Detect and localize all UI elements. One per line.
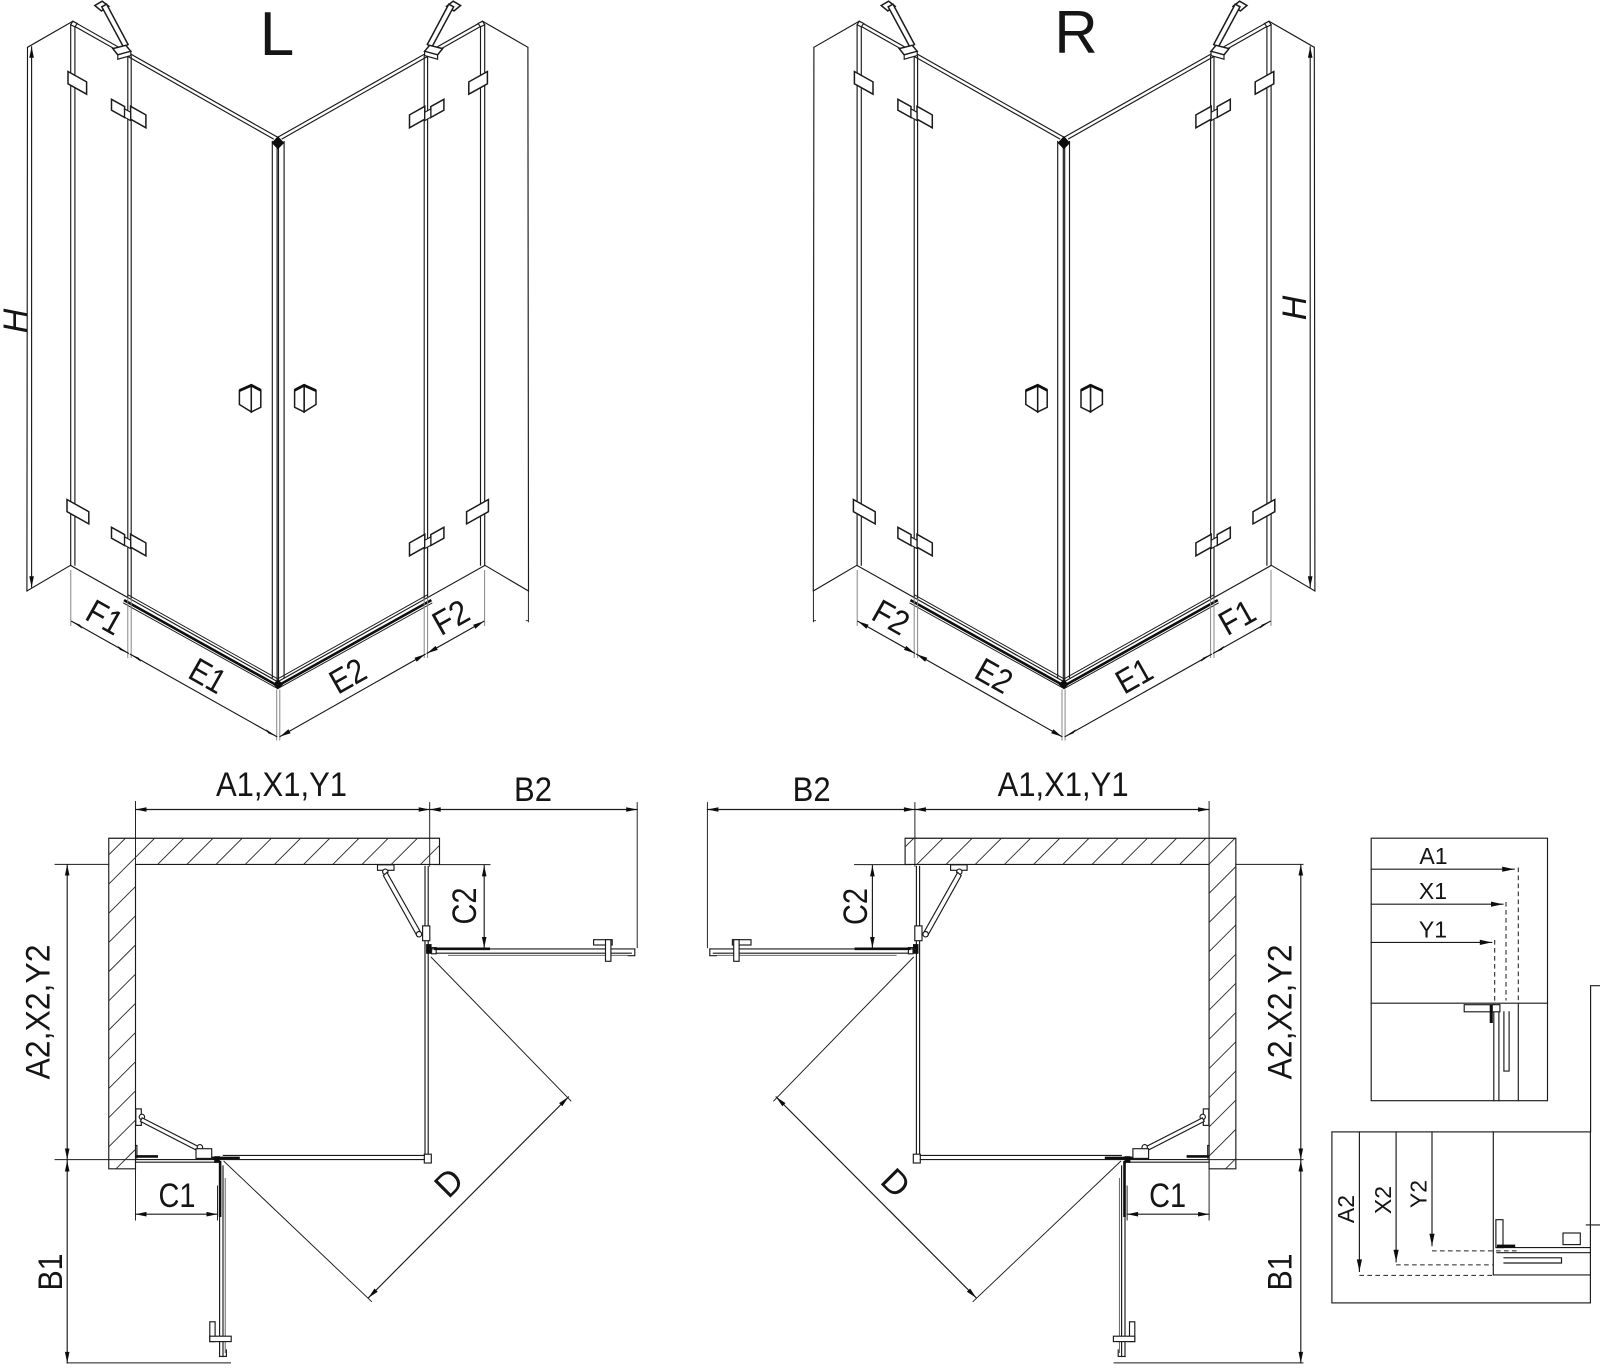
- svg-text:A1,X1,Y1: A1,X1,Y1: [216, 766, 347, 804]
- svg-text:Y2: Y2: [1406, 1180, 1432, 1208]
- svg-text:F1: F1: [79, 593, 129, 644]
- svg-text:R: R: [1054, 0, 1097, 66]
- svg-text:B1: B1: [1262, 1254, 1300, 1291]
- svg-text:A2,X2,Y2: A2,X2,Y2: [19, 945, 57, 1080]
- svg-text:B1: B1: [32, 1254, 70, 1291]
- svg-text:D: D: [427, 1161, 471, 1205]
- svg-text:A2,X2,Y2: A2,X2,Y2: [1262, 945, 1300, 1080]
- svg-text:E2: E2: [323, 651, 373, 702]
- svg-text:C1: C1: [159, 1177, 196, 1215]
- svg-text:B2: B2: [793, 771, 831, 809]
- svg-text:H: H: [1276, 295, 1314, 320]
- svg-text:A1,X1,Y1: A1,X1,Y1: [998, 766, 1129, 804]
- svg-text:F2: F2: [866, 593, 916, 644]
- svg-text:X2: X2: [1370, 1186, 1396, 1214]
- svg-text:A1: A1: [1419, 843, 1447, 869]
- svg-text:X1: X1: [1419, 878, 1447, 904]
- svg-text:E1: E1: [182, 651, 232, 702]
- svg-text:F1: F1: [1212, 593, 1262, 644]
- svg-text:A2: A2: [1333, 1195, 1359, 1223]
- svg-text:C1: C1: [1149, 1177, 1186, 1215]
- svg-text:H: H: [0, 308, 35, 333]
- svg-text:E1: E1: [1109, 651, 1159, 702]
- svg-text:E2: E2: [969, 651, 1019, 702]
- svg-text:Y1: Y1: [1419, 917, 1447, 943]
- svg-text:D: D: [873, 1161, 917, 1205]
- svg-text:C2: C2: [837, 888, 875, 925]
- svg-text:F2: F2: [426, 593, 476, 644]
- svg-text:C2: C2: [446, 888, 484, 925]
- svg-text:L: L: [260, 0, 294, 69]
- svg-text:B2: B2: [514, 771, 552, 809]
